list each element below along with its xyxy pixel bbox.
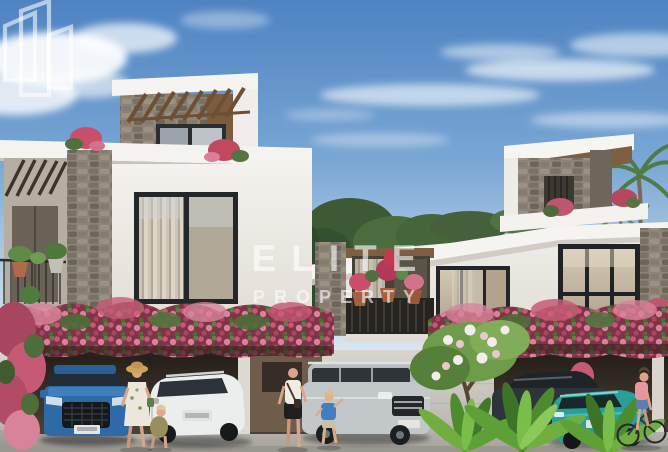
left-balcony [0, 158, 67, 308]
villa-scene-illustration [0, 0, 668, 452]
property-photo: ELITE PROPERTY [0, 0, 668, 452]
stone-tower [112, 73, 258, 154]
silver-suv [302, 363, 430, 445]
right-villa-balcony [346, 248, 434, 334]
left-villa-main-window [134, 192, 238, 304]
